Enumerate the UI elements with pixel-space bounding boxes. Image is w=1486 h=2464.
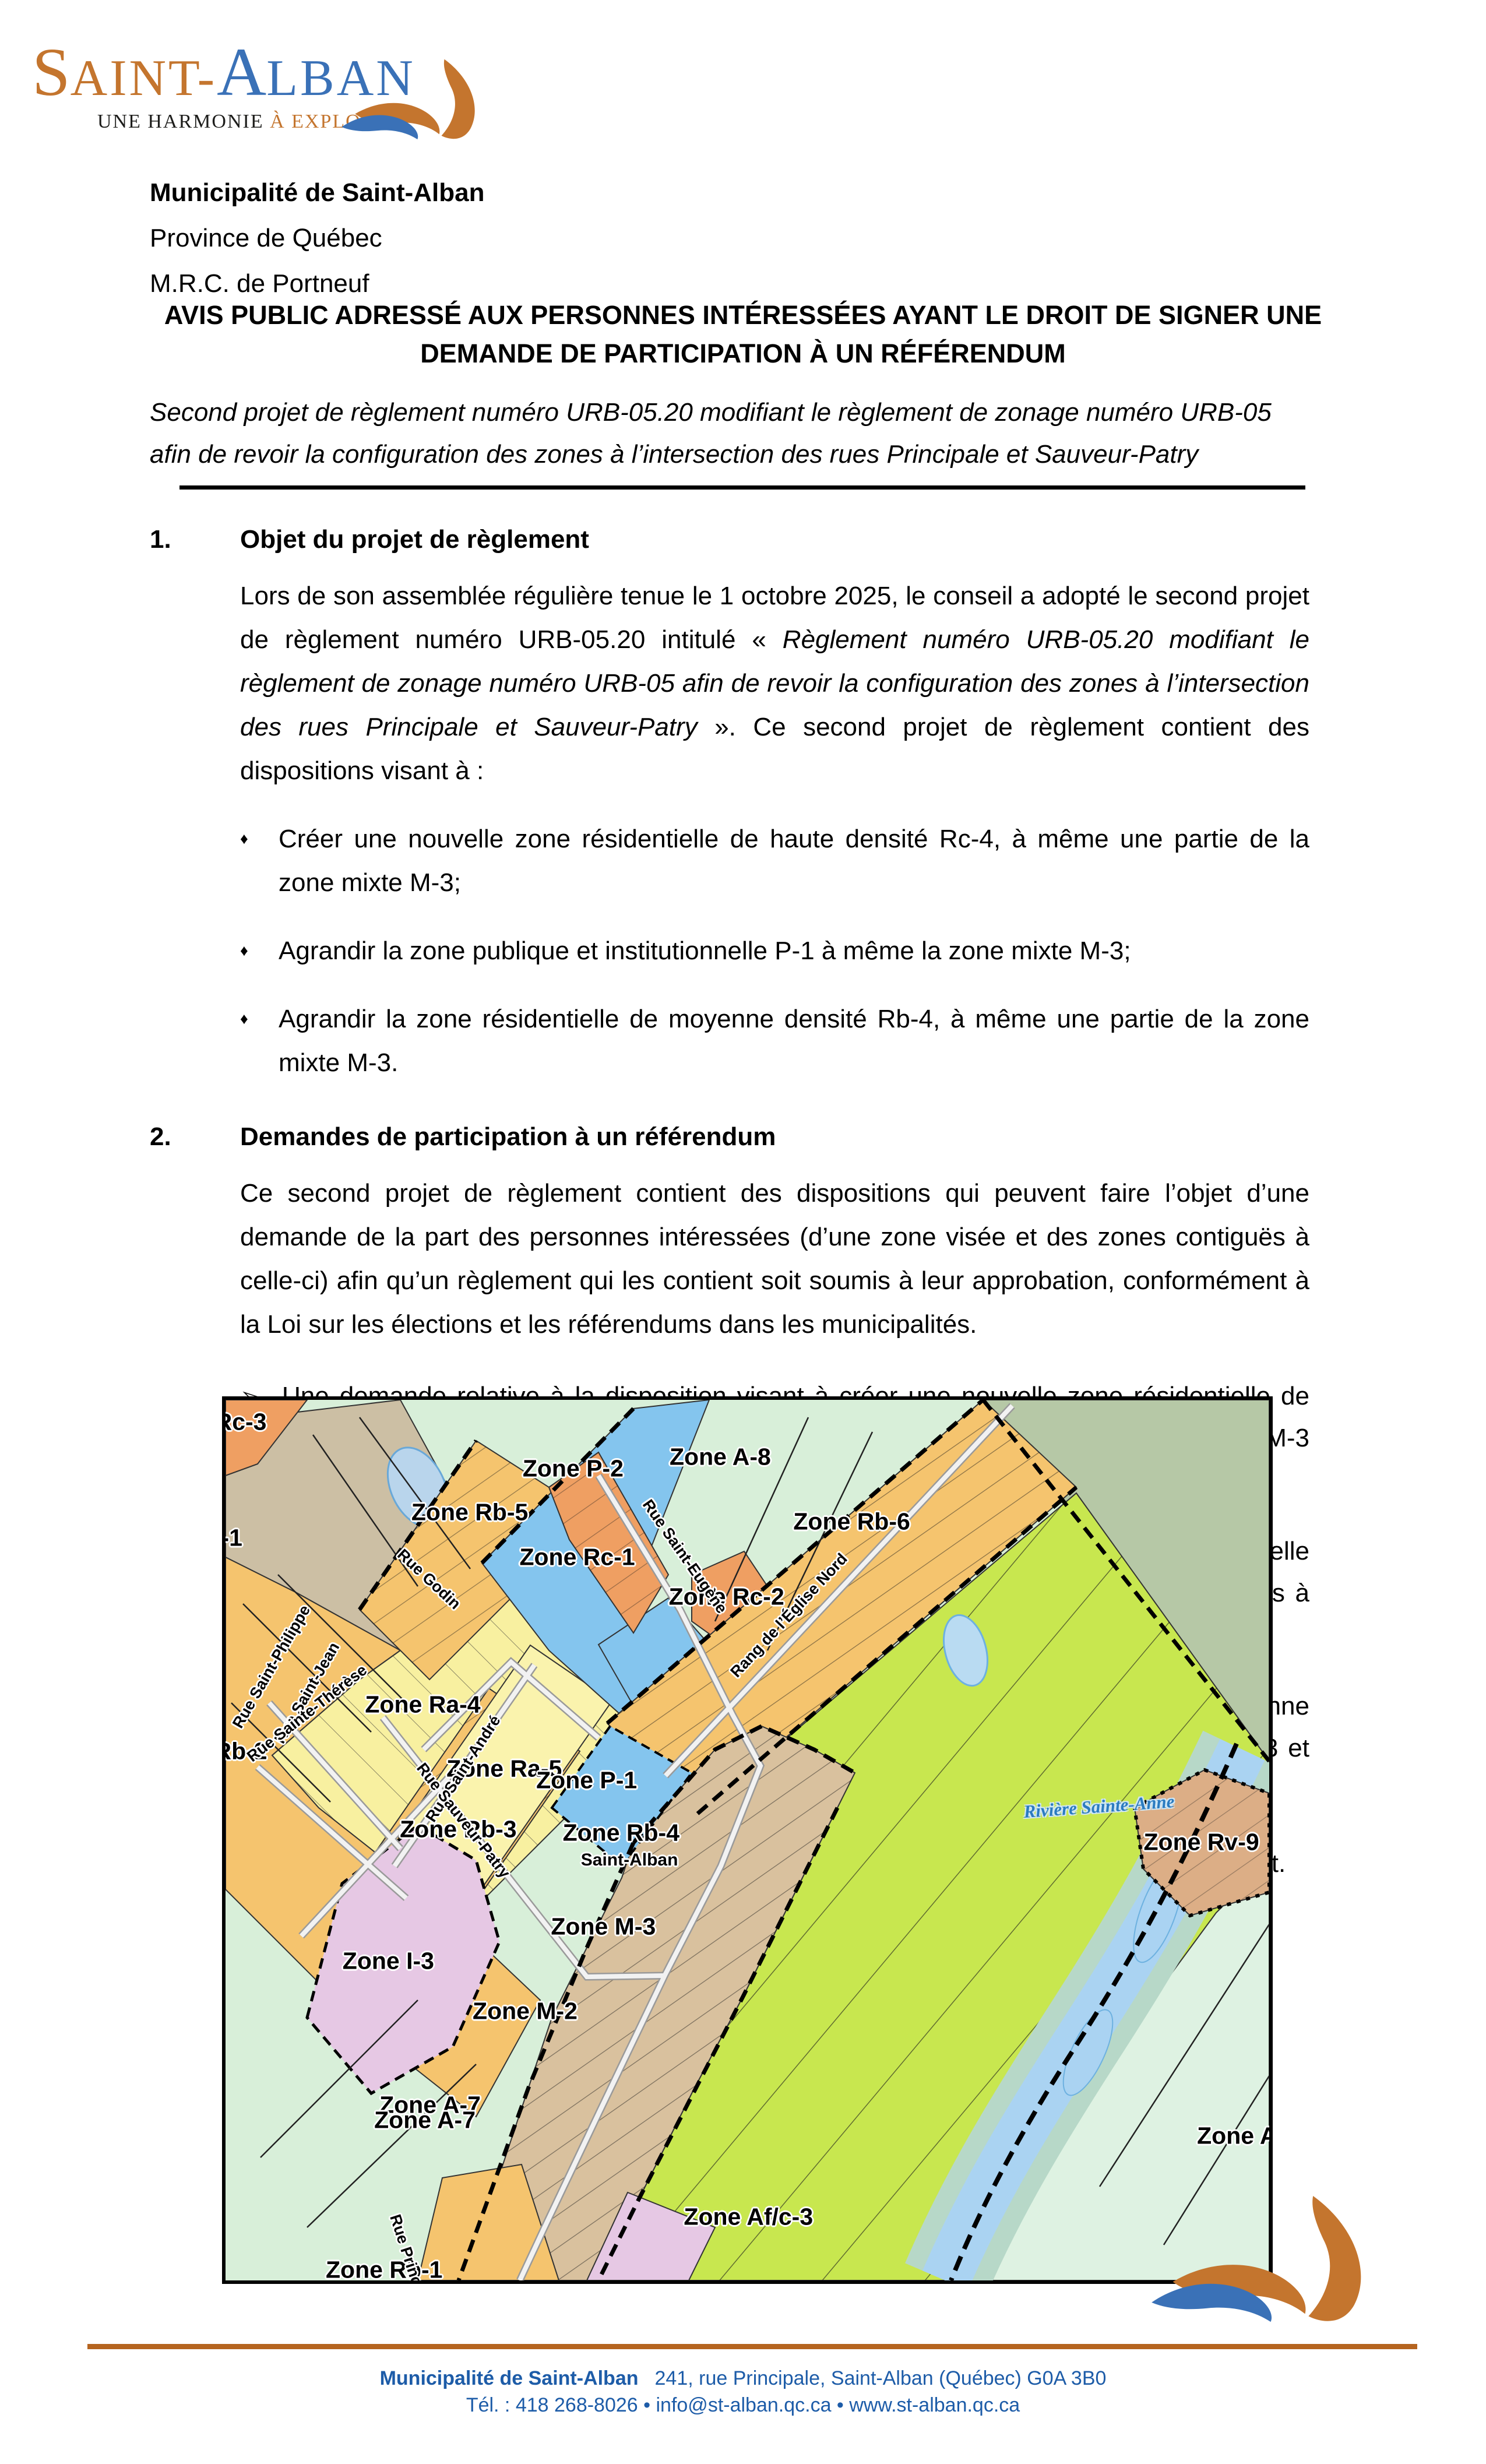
zoning-map-graphic — [226, 1400, 1269, 2280]
bullet-text: Agrandir la zone résidentielle de moyenn… — [279, 997, 1309, 1085]
zone-label: Zone A- — [1197, 2122, 1273, 2150]
bullet-text: Créer une nouvelle zone résidentielle de… — [279, 817, 1309, 904]
document-header: Municipalité de Saint-Alban Province de … — [150, 170, 485, 307]
logo-swoosh-icon — [335, 38, 481, 164]
zone-label: Zone A-7 — [374, 2106, 476, 2134]
diamond-bullet-icon: ♦ — [240, 997, 279, 1085]
notice-subtitle: Second projet de règlement numéro URB-05… — [150, 392, 1309, 476]
page-footer: Municipalité de Saint-Alban241, rue Prin… — [0, 2365, 1486, 2419]
zone-label: Zone P-1 — [536, 1766, 637, 1794]
header-province: Province de Québec — [150, 216, 485, 261]
zone-label: Zone P-2 — [523, 1455, 624, 1482]
zone-label: Zone Rv-9 — [1143, 1828, 1259, 1856]
bullet-item: ♦Créer une nouvelle zone résidentielle d… — [240, 817, 1309, 904]
section-1-title: Objet du projet de règlement — [240, 518, 589, 561]
section-2-title: Demandes de participation à un référendu… — [240, 1115, 776, 1159]
municipality-logo: SAINT-ALBAN UNE HARMONIE À EXPLORER — [32, 22, 487, 156]
footer-address: 241, rue Principale, Saint-Alban (Québec… — [655, 2367, 1107, 2389]
bullet-text: Agrandir la zone publique et institution… — [279, 929, 1309, 973]
header-municipality: Municipalité de Saint-Alban — [150, 170, 485, 216]
zone-label: Zone Rc-1 — [519, 1544, 635, 1571]
zone-label: -1 — [222, 1525, 242, 1552]
zone-label: Zone I-3 — [343, 1947, 434, 1974]
diamond-bullet-icon: ♦ — [240, 817, 279, 904]
section-2-paragraph: Ce second projet de règlement contient d… — [240, 1171, 1309, 1346]
public-notice-page: { "logo": { "orange_initial": "S", "oran… — [0, 0, 1486, 2464]
section-2-heading: 2. Demandes de participation à un référe… — [150, 1115, 1309, 1159]
bullet-item: ♦Agrandir la zone résidentielle de moyen… — [240, 997, 1309, 1085]
zone-label: Zone Rb-6 — [793, 1508, 910, 1535]
zone-label: Zone Rb-4 — [563, 1819, 679, 1847]
zone-label: Zone A-8 — [670, 1444, 771, 1471]
footer-org: Municipalité de Saint-Alban — [380, 2367, 639, 2389]
diamond-bullet-icon: ♦ — [240, 929, 279, 973]
logo-initial-a: A — [217, 34, 266, 110]
section-1-number: 1. — [150, 518, 240, 561]
footer-address-line: Municipalité de Saint-Alban241, rue Prin… — [0, 2365, 1486, 2392]
section-2-number: 2. — [150, 1115, 240, 1159]
section-1-bullet-list: ♦Créer une nouvelle zone résidentielle d… — [240, 817, 1309, 1085]
zone-label: Zone Rc-3 — [222, 1408, 266, 1435]
section-1-heading: 1. Objet du projet de règlement — [150, 518, 1309, 561]
zone-label: Saint-Alban — [581, 1850, 678, 1870]
footer-contact-line: Tél. : 418 268-8026 • info@st-alban.qc.c… — [0, 2392, 1486, 2419]
zone-label: Zone Af/c-3 — [684, 2203, 813, 2231]
footer-swoosh-icon — [1133, 2196, 1378, 2328]
notice-title: AVIS PUBLIC ADRESSÉ AUX PERSONNES INTÉRE… — [152, 296, 1334, 373]
zone-label: Zone M-2 — [473, 1997, 578, 2025]
section-1-paragraph: Lors de son assemblée régulière tenue le… — [240, 574, 1309, 793]
zone-label: Zone Rb-5 — [411, 1499, 528, 1526]
logo-initial-s: S — [32, 34, 71, 110]
zone-label: Zone Ra-4 — [365, 1691, 480, 1718]
zone-label: Zone M-3 — [551, 1913, 656, 1940]
footer-divider — [87, 2344, 1417, 2349]
zoning-map: Zone Rc-3-1Zone P-2Zone A-8Zone Rb-5Zone… — [222, 1396, 1273, 2284]
bullet-item: ♦Agrandir la zone publique et institutio… — [240, 929, 1309, 973]
title-divider — [179, 485, 1305, 490]
